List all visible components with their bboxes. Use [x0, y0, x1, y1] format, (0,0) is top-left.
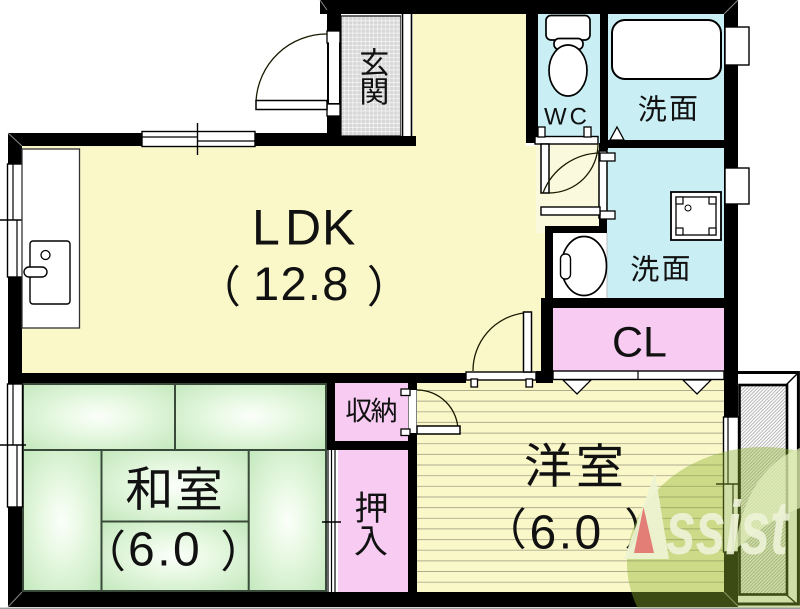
svg-text:12.8: 12.8 — [253, 257, 350, 310]
svg-text:ssist: ssist — [666, 486, 790, 571]
svg-text:WC: WC — [544, 104, 590, 131]
svg-text:L: L — [252, 200, 280, 256]
svg-text:K: K — [322, 200, 355, 256]
svg-text:CL: CL — [612, 319, 667, 367]
svg-text:6.0: 6.0 — [530, 507, 604, 560]
svg-text:6.0: 6.0 — [128, 524, 202, 577]
svg-text:D: D — [285, 200, 321, 256]
